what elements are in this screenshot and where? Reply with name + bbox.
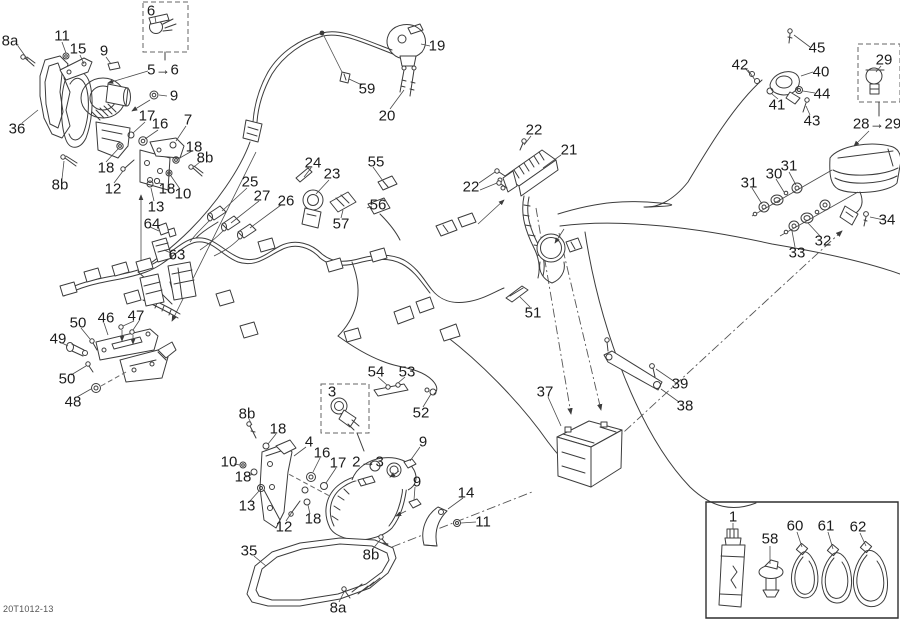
- battery-drawing: [557, 338, 662, 487]
- taillight-drawing: [752, 44, 900, 236]
- parts-diagram-page: 8a1115965→693617167188b18121318108b64631…: [0, 0, 900, 626]
- headlight-bottom-drawing: [240, 422, 461, 548]
- hardware-kit-box: [706, 502, 898, 618]
- mounting-bracket-drawing: [67, 325, 177, 393]
- bulb-3-box: [321, 384, 369, 451]
- gauge-console-drawing: [436, 196, 582, 302]
- turn-signal-drawing: [750, 29, 810, 112]
- fuse-box-drawing: [478, 139, 558, 224]
- ignition-switch-drawing: [190, 168, 400, 256]
- drawing-number: 20T1012-13: [3, 604, 54, 614]
- leader-lines: [18, 17, 884, 602]
- exploded-diagram: [0, 0, 900, 626]
- bulb-6-box: [143, 2, 188, 60]
- headlight-housing-drawing: [21, 53, 203, 268]
